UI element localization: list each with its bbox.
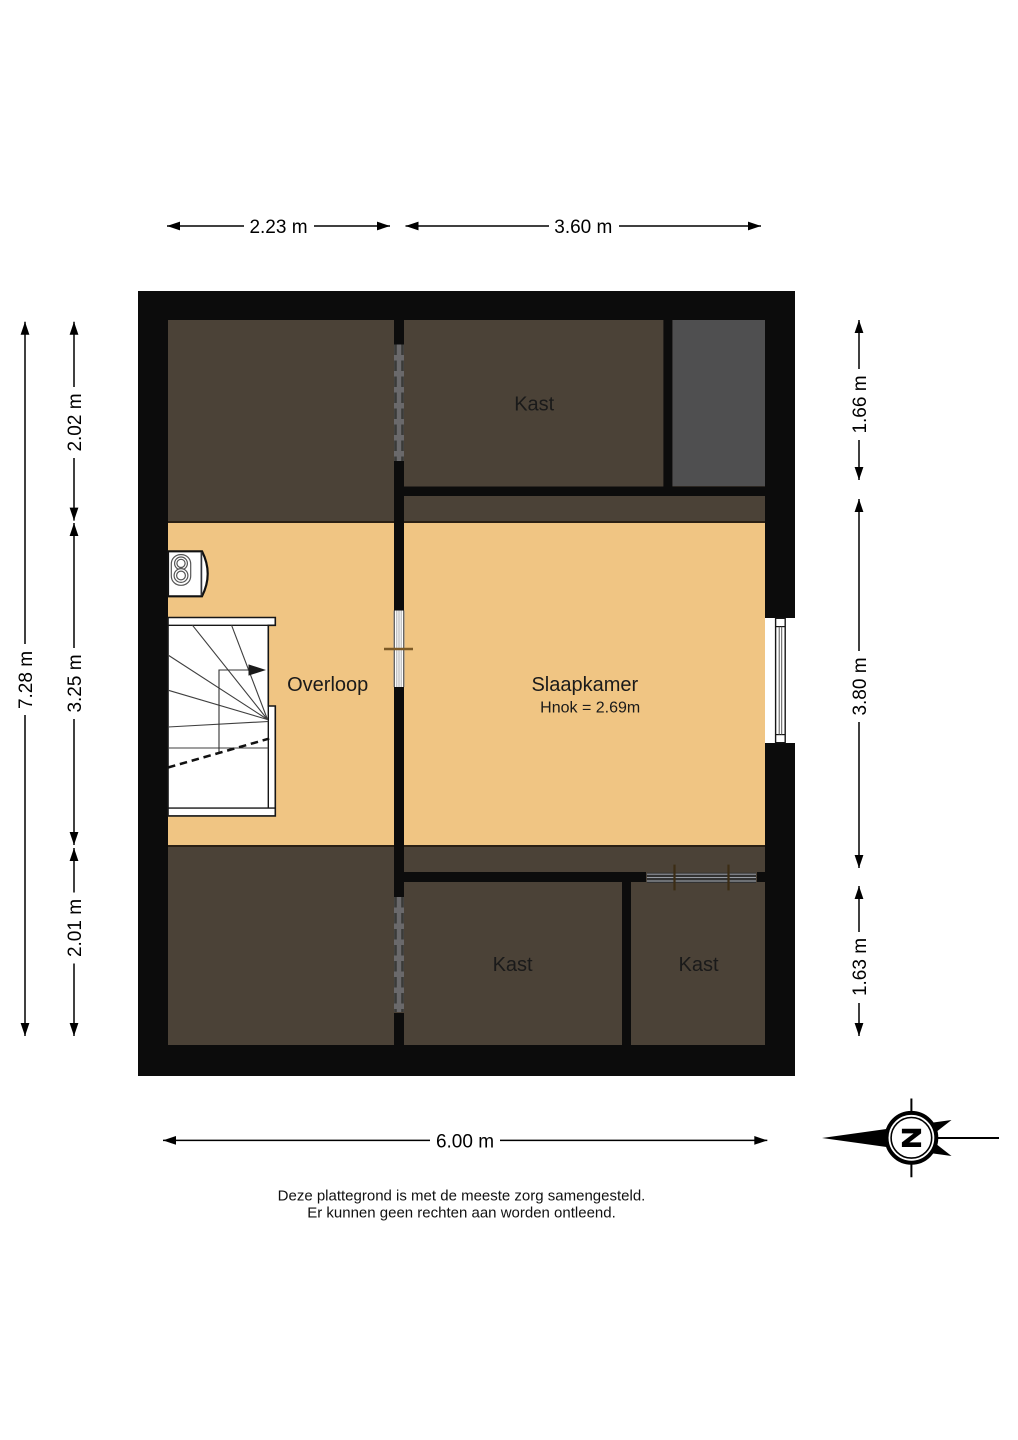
svg-text:Kast: Kast	[514, 394, 554, 416]
svg-text:2.01 m: 2.01 m	[65, 899, 86, 957]
svg-text:1.66 m: 1.66 m	[850, 375, 871, 433]
svg-text:Overloop: Overloop	[287, 674, 368, 696]
svg-text:7.28 m: 7.28 m	[16, 651, 37, 709]
svg-text:Slaapkamer: Slaapkamer	[531, 674, 638, 696]
svg-text:Kast: Kast	[678, 954, 718, 976]
svg-text:Kast: Kast	[493, 954, 533, 976]
svg-text:Deze plattegrond is met de mee: Deze plattegrond is met de meeste zorg s…	[278, 1188, 646, 1205]
svg-text:2.02 m: 2.02 m	[65, 393, 86, 451]
svg-text:3.25 m: 3.25 m	[65, 654, 86, 712]
svg-text:3.80 m: 3.80 m	[850, 657, 871, 715]
svg-text:6.00 m: 6.00 m	[436, 1131, 494, 1152]
svg-text:3.60 m: 3.60 m	[554, 217, 612, 238]
svg-text:2.23 m: 2.23 m	[249, 217, 307, 238]
svg-text:Er kunnen geen rechten aan wor: Er kunnen geen rechten aan worden ontlee…	[307, 1205, 616, 1222]
svg-text:1.63 m: 1.63 m	[850, 938, 871, 996]
svg-text:Hnok = 2.69m: Hnok = 2.69m	[540, 700, 640, 717]
